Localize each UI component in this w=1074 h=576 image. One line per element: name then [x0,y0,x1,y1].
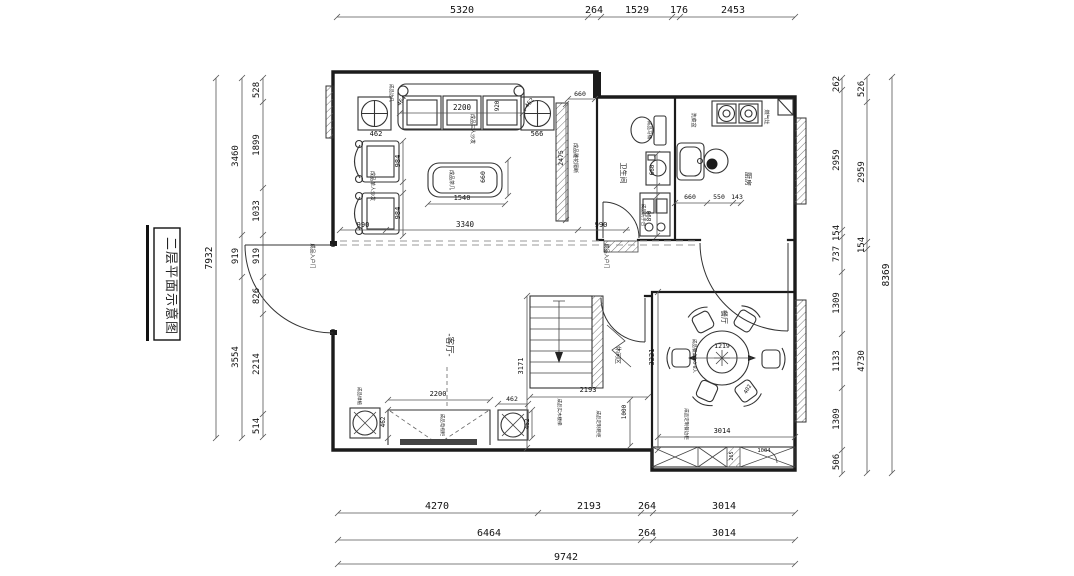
dim-1309: 1309 [832,408,842,430]
dim-265: 265 [729,451,735,460]
room-dining: 餐厅 [720,310,729,324]
doors [245,202,788,367]
dim-9742: 9742 [554,552,578,563]
dim-462: 462 [524,418,531,429]
dim-143: 143 [731,193,743,201]
room-bathroom: 卫生间 [619,163,628,184]
plant-left [350,408,380,438]
dim-2959: 2959 [832,149,842,171]
kitchen-fixtures [677,99,793,180]
dim-919: 919 [231,248,241,264]
dim-826: 826 [252,288,262,304]
sideboard-cabinets [652,447,795,467]
dim-660: 660 [649,164,656,175]
dim-3340: 3340 [456,220,475,229]
label-tea-table: 成品茶几 [448,170,455,190]
dim-176: 176 [670,5,688,16]
dim-462: 462 [370,130,383,138]
bathroom-fixtures [604,116,670,252]
dim-154: 154 [857,237,867,253]
dim-1219: 1219 [714,342,730,350]
dim-1309: 1309 [832,292,842,314]
dim-line [655,289,661,453]
dim-6464: 6464 [477,528,501,539]
dim-4730: 4730 [857,350,867,372]
dim-462: 462 [524,96,536,109]
entry-door-swing [700,243,788,331]
dim-line [337,227,630,233]
dim-660: 660 [574,90,586,98]
window-kitchen [795,118,806,204]
stair-down-arrow [555,352,563,363]
dining-furniture [652,303,795,467]
dim-5320: 5320 [450,5,474,16]
label-toilet: 成品马桶 [646,121,653,139]
tv-wall [350,408,528,445]
dim-264: 264 [638,528,656,539]
dim-514: 514 [252,418,262,434]
coffee-table [428,163,502,197]
dim-2959: 2959 [857,161,867,183]
room-kitchen: 厨房 [744,172,753,186]
dim-2475: 2475 [557,150,565,166]
dim-990: 990 [357,221,370,229]
dim-264: 264 [638,501,656,512]
dim-984: 984 [394,207,402,220]
dim-line [505,157,511,199]
dim-1540: 1540 [454,194,471,202]
dim-3014: 3014 [712,528,736,539]
dim-264: 264 [585,5,603,16]
page-title: 二层平面示意图 [163,237,179,335]
corridor-dashes [340,241,697,245]
staircase [530,296,603,388]
floor-plan-document: 二层平面示意图 [0,0,1074,576]
dim-2200: 2200 [453,103,472,112]
dim-402: 402 [743,384,753,396]
dim-154: 154 [832,225,842,241]
dim-line [527,394,651,400]
dim-3460: 3460 [231,145,241,167]
dim-919: 919 [252,248,262,264]
dim-3221: 3221 [648,349,656,366]
floor-plan-canvas: 二层平面示意图 [0,0,1074,576]
wall-pillar [593,72,601,98]
room-leisure: 休闲区 [614,346,622,364]
dim-2193: 2193 [580,386,597,394]
dim-984: 984 [394,155,402,168]
label-screen: 成品雕花隔断 [572,143,579,173]
stair-hall-door-swing [601,298,645,342]
label-shoe-cabinet: 成品定制鞋柜 [595,411,602,438]
dim-737: 737 [832,246,842,262]
dim-890: 890 [646,210,653,221]
stair-wall-hatch [592,296,603,388]
dim-1133: 1133 [832,350,842,372]
dim-4270: 4270 [425,501,449,512]
window-dining [795,300,806,422]
dim-3014: 3014 [714,427,731,435]
kitchen-sink [677,143,704,180]
dim-3554: 3554 [231,346,241,368]
dim-660: 660 [479,171,487,183]
dim-506: 506 [832,454,842,470]
dim-1000: 1000 [621,404,628,419]
dim-462: 462 [380,416,387,427]
dim-3014: 3014 [712,501,736,512]
dim-1529: 1529 [625,5,649,16]
label-tv-cabinet: 成品电视柜 [439,414,446,437]
dim-1899: 1899 [252,134,262,156]
dim-3171: 3171 [517,358,525,375]
label-sink: 洗菜盆 [690,112,697,127]
dim-2193: 2193 [577,501,601,512]
dim-1004: 1004 [757,448,771,454]
dim-462: 462 [506,395,518,403]
label-armchair: 成品单人沙发 [369,171,376,201]
label-dining-table: 成品餐桌2.0-8人 [691,339,698,374]
label-side-table: 成品边几 [388,84,395,102]
label-sofa: 成品三人沙发 [469,114,476,144]
label-gas-stove: 燃气灶 [763,109,770,124]
label-stairs: 成品实木楼梯 [556,399,563,426]
dim-line [654,151,660,239]
dim-528: 528 [252,82,262,98]
dim-line [864,74,870,476]
gas-stove [712,101,762,126]
dim-line [400,138,406,239]
label-entry-door-right: 成品入户门 [603,243,610,268]
dim-8369: 8369 [881,263,892,286]
stair-outline [530,296,592,388]
dim-1033: 1033 [252,200,262,222]
bathroom-door-swing [603,202,639,238]
annotation-texts: 5320264152917624534270219326430146464264… [204,5,892,563]
dim-526: 526 [857,81,867,97]
dim-2453: 2453 [721,5,745,16]
label-sideboard: 成品定制餐边柜 [683,408,690,440]
window-lounge [326,86,333,138]
room-living: -客厅- [444,333,455,356]
label-entry-door-left: 成品入户门 [309,243,316,268]
dim-7932: 7932 [204,247,215,270]
label-washstand: 成品洗手台 [640,204,647,227]
dim-920: 920 [494,100,501,111]
title-block: 二层平面示意图 [146,225,180,341]
tv-cabinet [400,439,477,445]
dim-262: 262 [832,76,842,92]
dim-550: 550 [713,193,725,201]
dim-990: 990 [595,221,608,229]
label-plant: 成品绿植 [356,387,363,405]
dashed-guides [340,241,697,444]
dim-2214: 2214 [252,353,262,375]
dim-660: 660 [684,193,696,201]
dim-2200: 2200 [430,390,447,398]
title-bar [146,225,149,341]
dim-566: 566 [531,130,544,138]
